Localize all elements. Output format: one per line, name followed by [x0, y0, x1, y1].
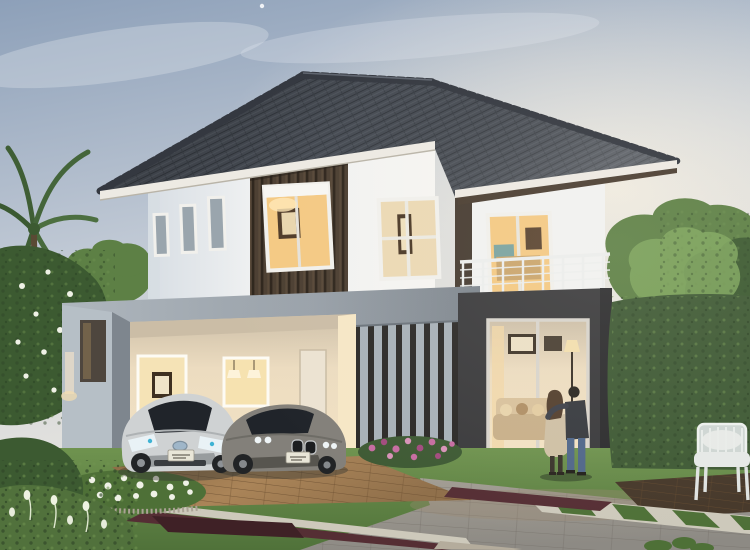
architectural-rendering: [0, 0, 750, 550]
scene-canvas: [0, 0, 750, 550]
atmosphere-overlay: [0, 0, 750, 550]
